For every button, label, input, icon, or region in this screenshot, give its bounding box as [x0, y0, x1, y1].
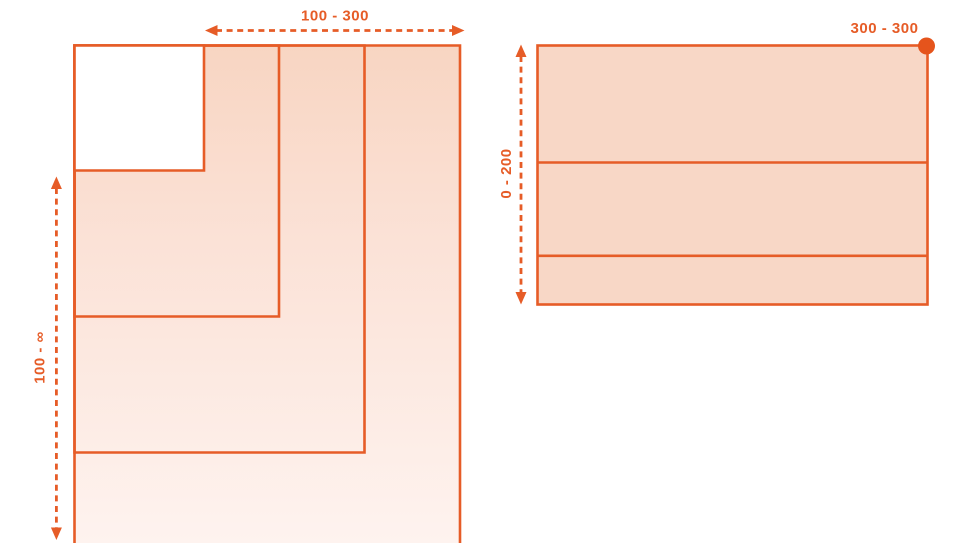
- svg-text:100 - 300: 100 - 300: [301, 8, 369, 25]
- svg-text:300 - 300: 300 - 300: [851, 20, 919, 37]
- svg-text:0 - 200: 0 - 200: [498, 148, 515, 198]
- svg-text:100 - ∞: 100 - ∞: [32, 331, 49, 384]
